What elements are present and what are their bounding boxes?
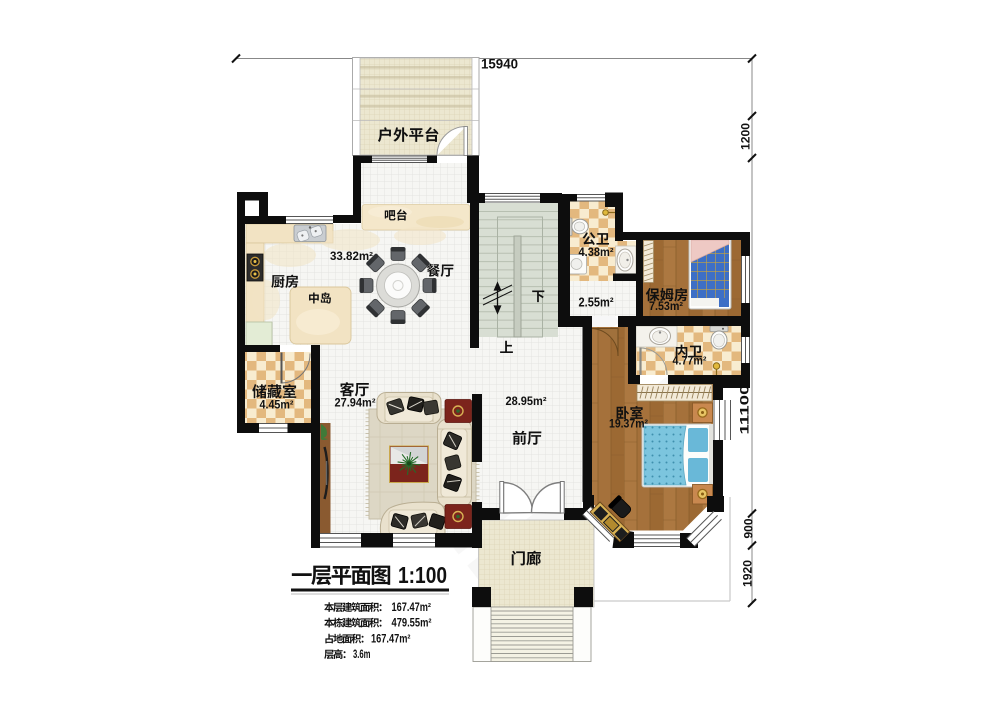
svg-text:4.77m²: 4.77m² [673,356,707,368]
svg-text:28.95m²: 28.95m² [506,396,547,408]
svg-text:900: 900 [742,518,756,538]
svg-text:7.53m²: 7.53m² [649,301,683,313]
svg-text:33.82m²: 33.82m² [330,251,373,263]
svg-text:15940: 15940 [481,57,518,72]
svg-text:27.94m²: 27.94m² [335,397,376,409]
svg-text:167.47m²: 167.47m² [392,602,432,614]
svg-text:1200: 1200 [739,123,753,150]
svg-text:1920: 1920 [741,560,755,587]
svg-text:19.37m²: 19.37m² [609,418,648,430]
svg-text:4.45m²: 4.45m² [260,400,294,412]
svg-text:11100: 11100 [740,385,752,435]
svg-text:2.55m²: 2.55m² [579,296,614,310]
svg-text:167.47m²: 167.47m² [371,634,411,646]
svg-text:4.38m²: 4.38m² [579,247,614,259]
svg-text:479.55m²: 479.55m² [392,618,432,630]
svg-text:1:100: 1:100 [398,562,447,588]
svg-text:3.6m: 3.6m [353,649,371,661]
